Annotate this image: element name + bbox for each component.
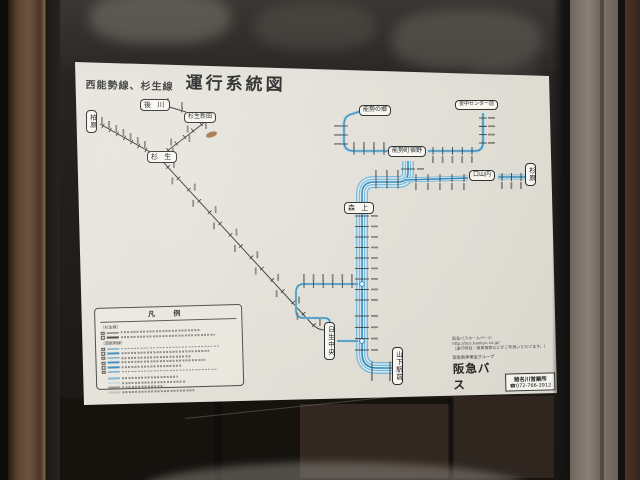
frame-right-gap <box>618 0 625 480</box>
glass-reflection <box>90 0 230 44</box>
frame-left-inner <box>46 0 60 480</box>
photo-of-bus-route-sign: 西能勢線、杉生線 運行系統図 後 川 杉生新田 柏原 杉 生 能勢の郷 豊中セン… <box>0 0 640 480</box>
frame-left-wood <box>8 0 46 480</box>
case-panel <box>452 396 554 478</box>
frame-left-edge <box>0 0 8 480</box>
glass-reflection <box>255 4 375 50</box>
frame-right-post <box>570 0 600 480</box>
frame-right-post <box>604 0 618 480</box>
frame-right-wood <box>625 0 640 480</box>
case-shadow <box>552 0 570 480</box>
